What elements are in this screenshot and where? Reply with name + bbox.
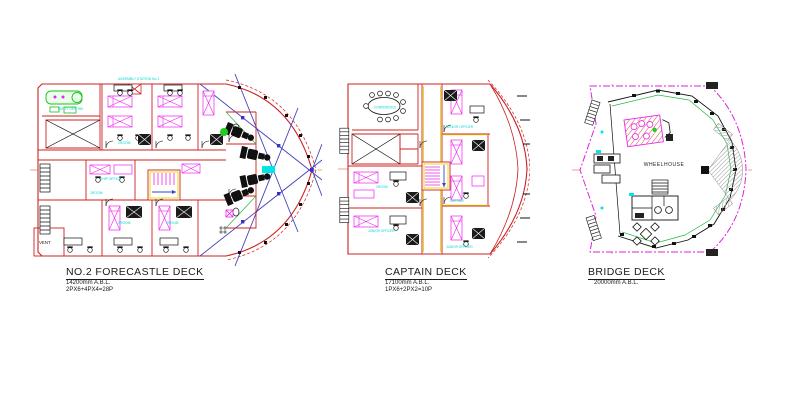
senior-officer-label: SENIOR OFFICER [446, 125, 474, 129]
two-room-label: 2ROOM [118, 221, 131, 225]
captain-deck-title: CAPTAIN DECK [385, 266, 467, 280]
junior-officer-label: JUNIOR OFFICER [446, 245, 473, 249]
captain-deck-caption: CAPTAIN DECK 17100mm A.B.L. 1PX6+2PX2=10… [385, 262, 467, 294]
bridge-deck-plan: WHEELHOUSE [572, 76, 752, 262]
captain-deck-plan: CONFERENCE 2ROOM JUNIOR OFFICER SENIOR O… [338, 76, 530, 262]
junior-officer-label: JUNIOR OFFICER [368, 229, 395, 233]
captain-label: CAPTAIN [450, 199, 464, 203]
forecastle-deck-elevation: 14200mm A.B.L. [66, 280, 204, 287]
em-gen-room-label: EM'CY GEN RM [58, 107, 83, 111]
ship-office-label: SHIP OFFICE [100, 177, 122, 181]
bridge-deck-elevation: 20000mm A.B.L. [588, 280, 665, 287]
forecastle-deck-caption: NO.2 FORECASTLE DECK 14200mm A.B.L. 2PX6… [66, 262, 204, 294]
vent-label: VENT [39, 240, 51, 245]
bridge-room-labels: WHEELHOUSE [644, 162, 685, 168]
conference-label: CONFERENCE [374, 106, 396, 110]
two-room-label: 2ROOM [166, 221, 179, 225]
captain-deck-capacity: 1PX6+2PX2=10P [385, 287, 467, 294]
forecastle-deck-title: NO.2 FORECASTLE DECK [66, 266, 204, 280]
stairwell [422, 162, 450, 190]
captain-deck-elevation: 17100mm A.B.L. [385, 280, 467, 287]
bridge-deck-caption: BRIDGE DECK 20000mm A.B.L. [588, 262, 665, 287]
two-room-label: 2ROOM [118, 141, 131, 145]
two-room-label: 2ROOM [90, 191, 103, 195]
drawing-sheet: ASSEMBLY STATION No.1 EM'CY GEN RM SHIP … [0, 0, 800, 402]
forecastle-deck-capacity: 2PX6+4PX4=28P [66, 287, 204, 294]
stairwell [148, 170, 180, 200]
two-room-label: 2ROOM [376, 185, 388, 189]
assembly-station-label: ASSEMBLY STATION No.1 [118, 77, 159, 81]
bridge-deck-title: BRIDGE DECK [588, 266, 665, 280]
forecastle-deck-plan: ASSEMBLY STATION No.1 EM'CY GEN RM SHIP … [30, 72, 322, 268]
wheelhouse-label: WHEELHOUSE [644, 162, 685, 168]
